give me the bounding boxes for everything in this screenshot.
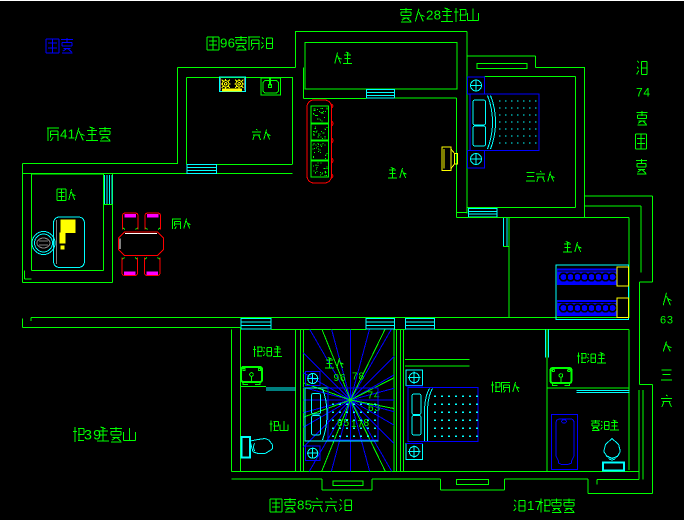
svg-text:28: 28 bbox=[426, 8, 441, 23]
svg-text:96: 96 bbox=[220, 36, 235, 51]
svg-text:17: 17 bbox=[527, 498, 542, 513]
svg-text:63: 63 bbox=[660, 315, 673, 327]
svg-text:41: 41 bbox=[60, 127, 75, 142]
svg-text:78: 78 bbox=[352, 371, 364, 382]
svg-text:74: 74 bbox=[636, 86, 650, 100]
svg-text:96: 96 bbox=[334, 373, 346, 384]
svg-text:85: 85 bbox=[297, 498, 312, 513]
